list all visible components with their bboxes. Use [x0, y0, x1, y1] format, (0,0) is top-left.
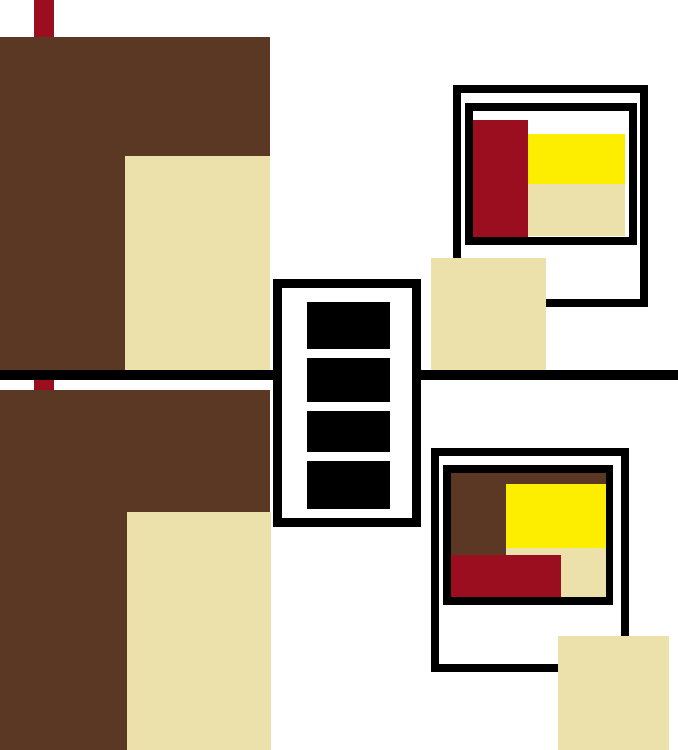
filmstrip-frame-4 [307, 461, 390, 509]
top-polaroid-red-rect [473, 120, 528, 237]
upper-cream-block [125, 156, 270, 370]
top-red-stripe [34, 0, 54, 37]
middle-cream-square [431, 258, 546, 370]
filmstrip-frame-3 [307, 411, 390, 452]
bottom-cream-square [558, 636, 669, 750]
lower-red-stripe [34, 380, 54, 390]
top-polaroid-cream-rect [528, 184, 625, 236]
bottom-polaroid-red-rect [451, 555, 561, 597]
lower-cream-block [127, 512, 271, 750]
top-polaroid-yellow-rect [528, 134, 625, 184]
bottom-polaroid-yellow-rect [506, 484, 606, 548]
abstract-composition-canvas [0, 0, 678, 750]
filmstrip-frame-2 [307, 358, 390, 402]
filmstrip-frame-1 [307, 302, 390, 349]
